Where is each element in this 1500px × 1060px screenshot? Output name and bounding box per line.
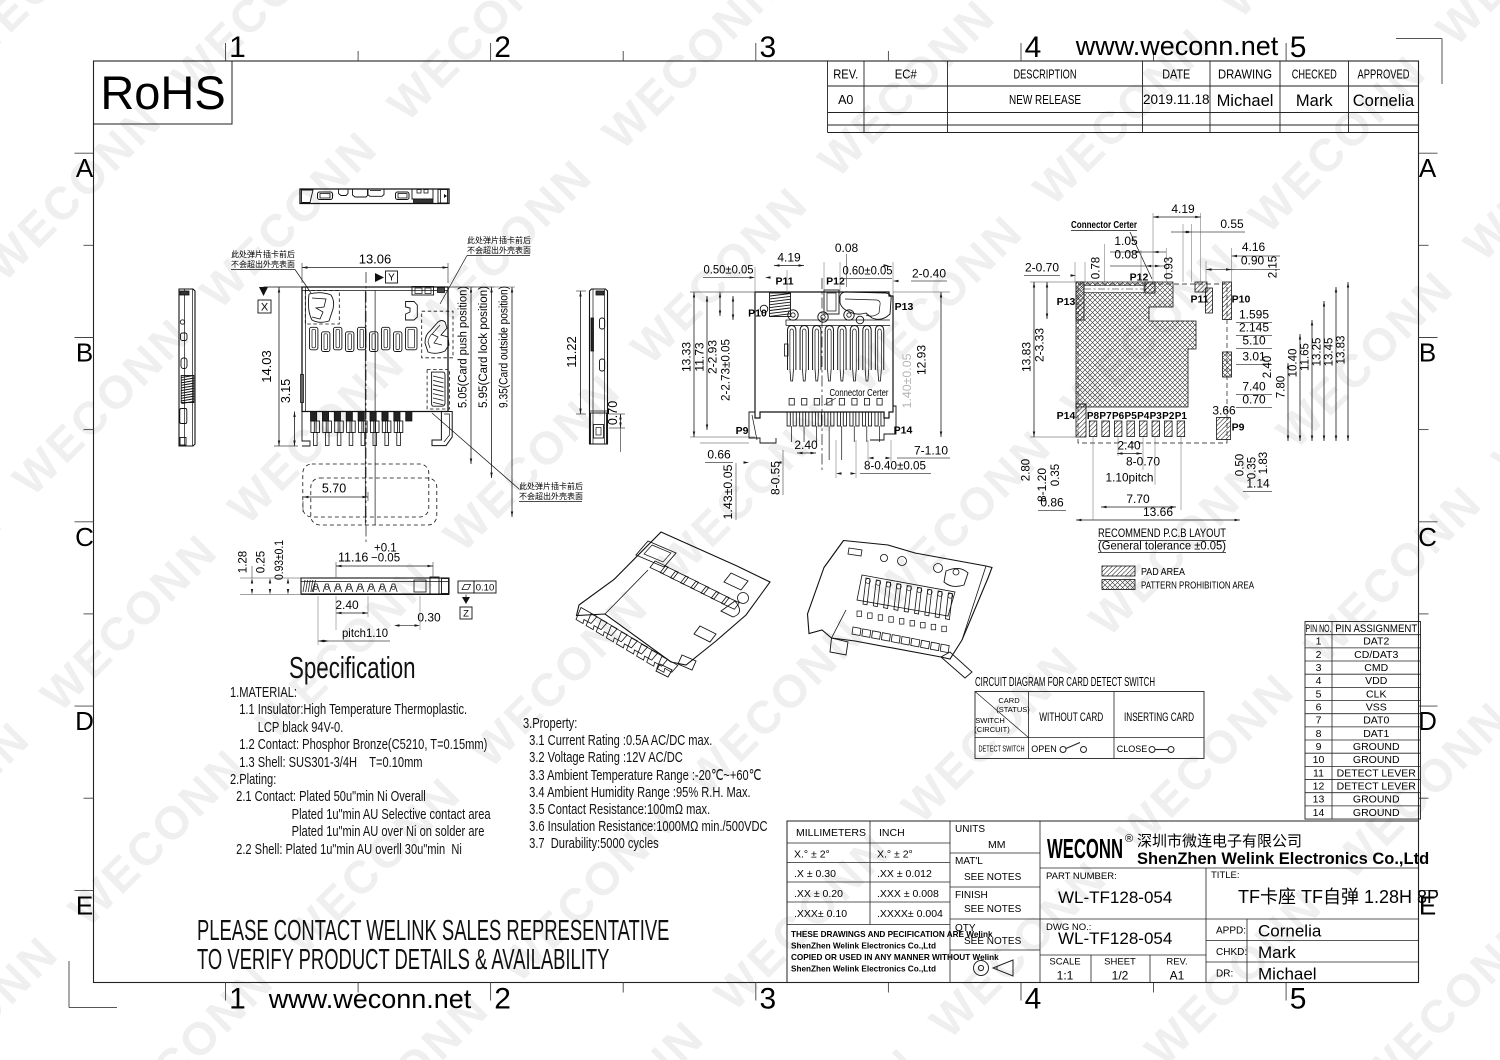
svg-text:WECONN: WECONN (1047, 833, 1123, 864)
svg-text:RoHS: RoHS (100, 66, 225, 119)
svg-text:C: C (75, 522, 94, 552)
svg-text:Connector Certer: Connector Certer (830, 387, 889, 399)
svg-text:7.40: 7.40 (1242, 380, 1266, 394)
svg-text:4: 4 (1025, 31, 1042, 64)
svg-text:13.83: 13.83 (1020, 342, 1034, 372)
svg-text:2.40: 2.40 (1117, 439, 1141, 453)
svg-text:SEE NOTES: SEE NOTES (964, 936, 1022, 947)
svg-text:2: 2 (494, 983, 511, 1016)
svg-text:11.16: 11.16 (338, 551, 368, 565)
svg-text:11: 11 (1313, 767, 1324, 779)
svg-text:13.45: 13.45 (1324, 338, 1336, 367)
svg-text:TF卡座 TF自弹 1.28H 8P: TF卡座 TF自弹 1.28H 8P (1238, 887, 1439, 907)
svg-text:CLOSE: CLOSE (1117, 744, 1148, 754)
svg-text:APPROVED: APPROVED (1358, 68, 1410, 82)
svg-text:DETECT LEVER: DETECT LEVER (1337, 781, 1417, 793)
svg-text:1.83: 1.83 (1258, 452, 1270, 474)
svg-text:8-0.55: 8-0.55 (769, 461, 783, 495)
svg-text:0.70: 0.70 (1242, 393, 1266, 407)
svg-text:2.40: 2.40 (794, 438, 818, 452)
svg-text:PATTERN PROHIBITION AREA: PATTERN PROHIBITION AREA (1141, 580, 1254, 592)
svg-text:Cornelia: Cornelia (1258, 922, 1322, 941)
svg-text:13: 13 (1313, 794, 1325, 806)
svg-text:14.03: 14.03 (259, 350, 274, 383)
svg-text:Michael: Michael (1258, 965, 1317, 984)
svg-text:INSERTING CARD: INSERTING CARD (1124, 710, 1194, 724)
svg-text:11.22: 11.22 (564, 336, 579, 368)
svg-text:D: D (75, 706, 94, 736)
svg-text:(General tolerance ±0.05): (General tolerance ±0.05) (1098, 539, 1226, 553)
svg-text:GROUND: GROUND (1353, 754, 1400, 766)
svg-text:P3: P3 (1150, 411, 1163, 422)
svg-text:此处弹片插卡前后: 此处弹片插卡前后 (519, 481, 583, 491)
svg-text:P9: P9 (1232, 422, 1245, 434)
svg-text:1.10pitch: 1.10pitch (1106, 471, 1154, 485)
svg-text:7.80: 7.80 (1276, 376, 1288, 398)
svg-text:2: 2 (1316, 649, 1322, 661)
svg-text:www.weconn.net: www.weconn.net (1075, 31, 1279, 61)
svg-text:.XX ± 0.20: .XX ± 0.20 (794, 888, 843, 900)
svg-text:Z: Z (463, 609, 469, 620)
svg-text:P14: P14 (894, 425, 913, 437)
svg-text:WITHOUT CARD: WITHOUT CARD (1039, 710, 1103, 724)
svg-text:4.16: 4.16 (1242, 240, 1266, 254)
svg-text:SEE NOTES: SEE NOTES (964, 904, 1022, 915)
svg-text:C: C (1418, 522, 1437, 552)
svg-text:0.70: 0.70 (606, 401, 620, 425)
svg-text:不会超出外壳表面: 不会超出外壳表面 (231, 259, 295, 269)
svg-text:Connector Certer: Connector Certer (1071, 219, 1137, 231)
svg-text:VDD: VDD (1365, 675, 1388, 687)
svg-text:P2: P2 (1162, 411, 1175, 422)
svg-text:Y: Y (388, 273, 395, 284)
svg-text:DETECT LEVER: DETECT LEVER (1337, 767, 1417, 779)
svg-text:P12: P12 (1130, 272, 1149, 284)
svg-text:12.93: 12.93 (915, 345, 929, 375)
svg-text:2-3.33: 2-3.33 (1033, 328, 1047, 362)
svg-text:WL-TF128-054: WL-TF128-054 (1058, 888, 1172, 907)
svg-text:DAT2: DAT2 (1363, 636, 1389, 648)
svg-text:VSS: VSS (1366, 702, 1387, 714)
svg-text:0.86: 0.86 (1040, 496, 1064, 510)
svg-text:3: 3 (759, 983, 776, 1016)
svg-text:Cornelia: Cornelia (1353, 92, 1415, 110)
svg-text:DAT1: DAT1 (1363, 728, 1389, 740)
svg-text:5: 5 (1290, 983, 1307, 1016)
svg-text:4: 4 (1025, 983, 1042, 1016)
svg-text:−0.05: −0.05 (371, 553, 400, 565)
svg-text:0.10: 0.10 (476, 583, 495, 594)
svg-text:A: A (1419, 153, 1437, 183)
svg-text:CIRCUIT DIAGRAM FOR CARD DETEC: CIRCUIT DIAGRAM FOR CARD DETECT SWITCH (975, 675, 1155, 689)
svg-text:2.40: 2.40 (1262, 356, 1274, 378)
svg-text:6: 6 (1316, 702, 1322, 714)
svg-text:DAT0: DAT0 (1363, 715, 1389, 727)
svg-text:P5: P5 (1125, 411, 1138, 422)
svg-text:2019.11.18: 2019.11.18 (1143, 92, 1210, 107)
svg-text:DESCRIPTION: DESCRIPTION (1014, 68, 1077, 82)
svg-text:2.15: 2.15 (1268, 256, 1280, 278)
svg-text:SCALE: SCALE (1049, 957, 1080, 968)
svg-text:P13: P13 (1057, 296, 1076, 308)
svg-text:13.66: 13.66 (1143, 505, 1173, 519)
svg-text:1.43±0.05: 1.43±0.05 (721, 464, 735, 519)
svg-text:.XXX ± 0.008: .XXX ± 0.008 (877, 888, 939, 900)
svg-text:1: 1 (1316, 636, 1322, 648)
svg-text:REV.: REV. (833, 68, 858, 82)
svg-text:11.65: 11.65 (1300, 343, 1312, 371)
svg-text:ShenZhen Welink Electronics Co: ShenZhen Welink Electronics Co.,Ltd (791, 942, 936, 951)
svg-text:1: 1 (229, 31, 246, 64)
svg-text:0.55: 0.55 (1220, 217, 1244, 231)
svg-text:2-2.73±0.05: 2-2.73±0.05 (719, 339, 733, 401)
svg-text:X: X (261, 302, 269, 314)
svg-text:2-0.40: 2-0.40 (912, 267, 946, 281)
svg-text:13.06: 13.06 (359, 252, 392, 267)
svg-text:1:1: 1:1 (1057, 969, 1074, 983)
svg-text:(CIRCUIT): (CIRCUIT) (974, 725, 1010, 734)
svg-text:DR:: DR: (1216, 969, 1233, 980)
svg-text:P4: P4 (1137, 411, 1150, 422)
svg-text:Michael: Michael (1217, 92, 1274, 110)
svg-text:DATE: DATE (1162, 68, 1190, 82)
svg-text:A1: A1 (1170, 969, 1185, 983)
svg-text:MAT'L: MAT'L (955, 856, 983, 867)
svg-text:4.19: 4.19 (777, 251, 801, 265)
svg-text:2.80: 2.80 (1021, 459, 1033, 481)
svg-text:®: ® (1125, 833, 1133, 845)
svg-text:1/2: 1/2 (1112, 969, 1129, 983)
svg-text:EC#: EC# (895, 68, 917, 82)
svg-text:P8: P8 (1087, 411, 1100, 422)
svg-text:3.15: 3.15 (279, 379, 293, 403)
svg-text:1.05: 1.05 (1114, 234, 1138, 248)
svg-text:ShenZhen Welink Electronics Co: ShenZhen Welink Electronics Co.,Ltd (791, 965, 936, 974)
svg-text:.XXXX± 0.004: .XXXX± 0.004 (877, 908, 943, 920)
svg-text:APPD:: APPD: (1216, 926, 1246, 937)
svg-text:DRAWING: DRAWING (1218, 68, 1272, 82)
svg-text:MM: MM (988, 839, 1006, 851)
svg-text:COPIED OR USED IN ANY MANNER W: COPIED OR USED IN ANY MANNER WITHOUT Wel… (791, 953, 999, 962)
svg-text:FINISH: FINISH (955, 890, 988, 901)
svg-text:4.19: 4.19 (1171, 202, 1195, 216)
svg-text:SHEET: SHEET (1104, 957, 1136, 968)
svg-text:13.83: 13.83 (1336, 336, 1348, 365)
svg-text:PIN ASSIGNMENT: PIN ASSIGNMENT (1335, 623, 1417, 635)
svg-text:2-0.70: 2-0.70 (1025, 261, 1059, 275)
svg-text:1: 1 (229, 983, 246, 1016)
svg-text:P10: P10 (1232, 294, 1251, 306)
svg-text:DETECT SWITCH: DETECT SWITCH (979, 744, 1025, 754)
svg-text:P7: P7 (1099, 411, 1112, 422)
svg-text:P9: P9 (736, 425, 749, 437)
svg-text:PART NUMBER:: PART NUMBER: (1046, 871, 1117, 882)
svg-text:MILLIMETERS: MILLIMETERS (796, 827, 866, 839)
svg-text:GROUND: GROUND (1353, 807, 1400, 819)
svg-text:2.145: 2.145 (1239, 321, 1269, 335)
svg-text:B: B (76, 338, 93, 368)
svg-text:.XX ± 0.012: .XX ± 0.012 (877, 868, 932, 880)
svg-text:7.70: 7.70 (1126, 492, 1150, 506)
svg-text:P11: P11 (1190, 294, 1208, 306)
svg-text:4: 4 (1316, 675, 1322, 687)
svg-text:1.28: 1.28 (238, 551, 250, 573)
svg-text:.X ± 0.30: .X ± 0.30 (794, 868, 836, 880)
svg-text:9.35(Card outside position): 9.35(Card outside position) (499, 286, 511, 408)
svg-text:8-0.40±0.05: 8-0.40±0.05 (864, 459, 926, 473)
svg-text:pitch1.10: pitch1.10 (342, 626, 388, 640)
svg-text:5.70: 5.70 (322, 482, 346, 496)
svg-text:WL-TF128-054: WL-TF128-054 (1058, 929, 1172, 948)
svg-text:0.78: 0.78 (1091, 257, 1103, 279)
svg-text:OPEN: OPEN (1031, 744, 1057, 754)
svg-text:Mark: Mark (1296, 92, 1333, 110)
svg-text:SEE NOTES: SEE NOTES (964, 872, 1022, 883)
svg-text:0.08: 0.08 (835, 241, 859, 255)
svg-text:不会超出外壳表面: 不会超出外壳表面 (519, 491, 583, 501)
svg-text:Mark: Mark (1258, 943, 1296, 962)
svg-text:11.73: 11.73 (693, 342, 707, 371)
svg-text:0.93±0.1: 0.93±0.1 (274, 540, 286, 580)
svg-text:10: 10 (1313, 754, 1325, 766)
svg-text:ShenZhen Welink Electronics Co: ShenZhen Welink Electronics Co.,Ltd (1137, 850, 1429, 868)
svg-text:此处弹片插卡前后: 此处弹片插卡前后 (467, 235, 531, 245)
svg-text:X.° ± 2°: X.° ± 2° (877, 849, 913, 861)
svg-text:INCH: INCH (879, 827, 905, 839)
svg-text:12: 12 (1313, 781, 1325, 793)
svg-text:0.90: 0.90 (1241, 254, 1265, 268)
svg-text:3.66: 3.66 (1212, 404, 1236, 418)
svg-text:7: 7 (1316, 715, 1322, 727)
svg-text:(STATUS): (STATUS) (996, 705, 1030, 714)
svg-text:CARD: CARD (998, 696, 1020, 705)
svg-text:8: 8 (1316, 728, 1322, 740)
svg-text:10.40: 10.40 (1288, 349, 1300, 378)
svg-text:SWITCH: SWITCH (975, 716, 1005, 725)
svg-text:CLK: CLK (1366, 688, 1386, 700)
svg-text:0.25: 0.25 (256, 551, 268, 573)
svg-text:UNITS: UNITS (955, 824, 985, 835)
svg-text:此处弹片插卡前后: 此处弹片插卡前后 (231, 249, 295, 259)
svg-text:0.93: 0.93 (1164, 257, 1176, 279)
svg-text:1.595: 1.595 (1239, 308, 1269, 322)
svg-text:1.40±0.05: 1.40±0.05 (902, 354, 914, 409)
svg-text:7-1.10: 7-1.10 (914, 444, 948, 458)
svg-text:13.33: 13.33 (680, 342, 694, 372)
svg-text:NEW RELEASE: NEW RELEASE (1009, 93, 1081, 107)
svg-text:5.95(Card lock position): 5.95(Card lock position) (478, 286, 490, 408)
svg-text:2.40: 2.40 (335, 598, 359, 612)
svg-text:P6: P6 (1112, 411, 1125, 422)
svg-text:9: 9 (1316, 741, 1322, 753)
svg-text:2-2.93: 2-2.93 (706, 340, 720, 374)
svg-text:5.05(Card push position): 5.05(Card push position) (458, 286, 470, 408)
svg-text:5: 5 (1316, 688, 1322, 700)
svg-text:GROUND: GROUND (1353, 741, 1400, 753)
svg-text:PAD AREA: PAD AREA (1141, 566, 1185, 578)
svg-text:QTY: QTY (955, 923, 976, 934)
svg-text:CMD: CMD (1364, 662, 1388, 674)
svg-text:3: 3 (1316, 662, 1322, 674)
svg-text:0.66: 0.66 (707, 448, 731, 462)
svg-text:A: A (76, 153, 94, 183)
svg-text:5: 5 (1290, 31, 1307, 64)
svg-text:0.08: 0.08 (1114, 248, 1138, 262)
svg-text:14: 14 (1313, 807, 1325, 819)
svg-text:X.° ± 2°: X.° ± 2° (794, 849, 830, 861)
svg-text:.XXX± 0.10: .XXX± 0.10 (794, 908, 847, 920)
svg-text:PIN NO.: PIN NO. (1306, 623, 1332, 635)
svg-text:TITLE:: TITLE: (1211, 870, 1240, 881)
svg-text:P14: P14 (1057, 410, 1076, 422)
svg-text:B: B (1419, 338, 1436, 368)
svg-text:13.25: 13.25 (1312, 338, 1324, 367)
svg-text:1.14: 1.14 (1246, 477, 1270, 491)
svg-text:2: 2 (494, 31, 511, 64)
svg-text:CHKD:: CHKD: (1216, 947, 1247, 958)
svg-text:P11: P11 (775, 276, 793, 288)
svg-text:E: E (76, 890, 93, 920)
svg-text:0.50: 0.50 (1235, 454, 1247, 476)
svg-text:0.30: 0.30 (417, 611, 441, 625)
svg-text:深圳市微连电子有限公司: 深圳市微连电子有限公司 (1137, 833, 1302, 850)
svg-text:P1: P1 (1175, 411, 1188, 422)
svg-text:www.weconn.net: www.weconn.net (268, 984, 472, 1014)
svg-text:REV.: REV. (1166, 957, 1187, 968)
svg-text:5.10: 5.10 (1242, 334, 1266, 348)
svg-text:0.35: 0.35 (1050, 464, 1062, 486)
svg-text:A0: A0 (838, 93, 853, 107)
svg-text:P13: P13 (895, 301, 914, 313)
svg-text:不会超出外壳表面: 不会超出外壳表面 (467, 245, 531, 255)
svg-text:CHECKED: CHECKED (1292, 68, 1337, 82)
svg-text:0.50±0.05: 0.50±0.05 (704, 263, 754, 277)
svg-text:GROUND: GROUND (1353, 794, 1400, 806)
svg-text:3: 3 (759, 31, 776, 64)
svg-text:CD/DAT3: CD/DAT3 (1354, 649, 1398, 661)
svg-text:P10: P10 (748, 308, 767, 320)
